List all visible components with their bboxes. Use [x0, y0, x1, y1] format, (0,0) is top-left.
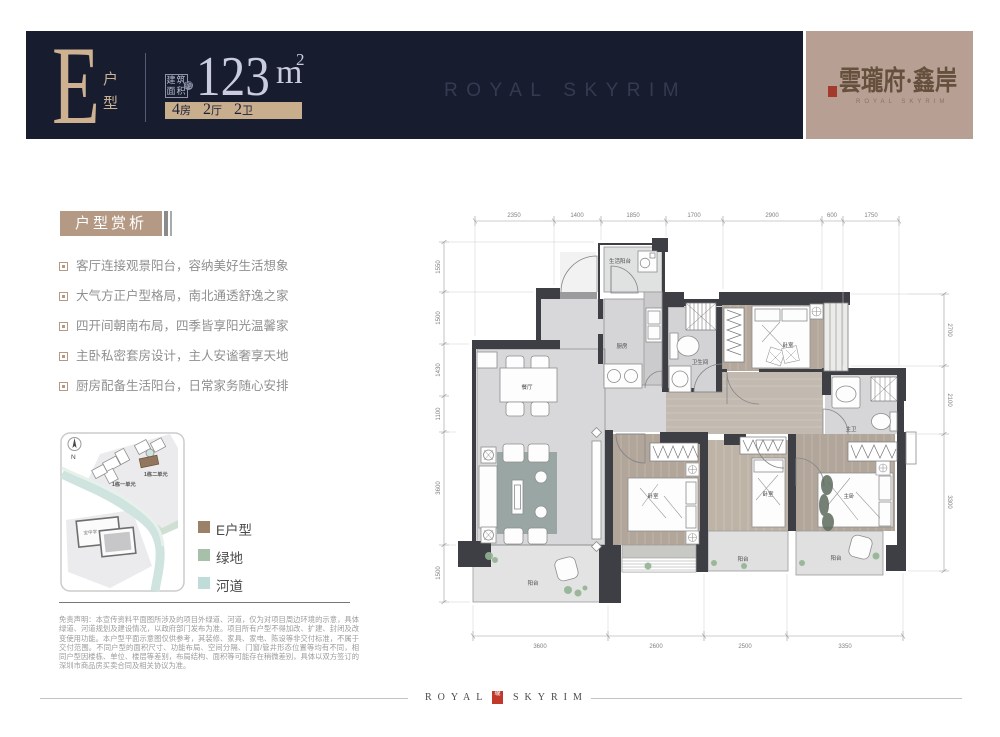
svg-text:1500: 1500	[436, 311, 442, 325]
svg-text:2700: 2700	[946, 323, 952, 337]
svg-text:厨房: 厨房	[616, 342, 628, 350]
svg-text:餐厅: 餐厅	[521, 383, 533, 391]
svg-text:阳台: 阳台	[527, 579, 539, 587]
svg-text:N: N	[71, 454, 76, 461]
svg-text:3600: 3600	[436, 481, 442, 495]
svg-text:主卫: 主卫	[845, 425, 857, 433]
svg-text:2500: 2500	[738, 644, 752, 650]
svg-text:1850: 1850	[626, 213, 640, 219]
svg-text:2600: 2600	[649, 644, 663, 650]
svg-text:1750: 1750	[864, 213, 878, 219]
svg-text:2350: 2350	[507, 213, 521, 219]
svg-text:2100: 2100	[946, 393, 952, 407]
svg-text:3600: 3600	[533, 644, 547, 650]
svg-text:1100: 1100	[436, 407, 442, 421]
svg-text:1栋一单元: 1栋一单元	[112, 480, 136, 488]
svg-text:卫生间: 卫生间	[692, 358, 709, 366]
svg-text:1700: 1700	[687, 213, 701, 219]
svg-text:2900: 2900	[765, 213, 779, 219]
svg-text:阳台: 阳台	[737, 555, 749, 563]
svg-text:1栋二单元: 1栋二单元	[144, 470, 168, 478]
svg-text:主卧: 主卧	[843, 492, 855, 500]
svg-text:1400: 1400	[570, 213, 584, 219]
svg-text:阳台: 阳台	[830, 554, 842, 562]
svg-text:卧室: 卧室	[782, 341, 794, 349]
svg-text:600: 600	[827, 213, 838, 219]
svg-text:1550: 1550	[436, 260, 442, 274]
svg-text:3300: 3300	[946, 495, 952, 509]
svg-text:1430: 1430	[436, 363, 442, 377]
svg-text:生活阳台: 生活阳台	[609, 257, 632, 265]
svg-text:1500: 1500	[436, 566, 442, 580]
svg-text:3350: 3350	[838, 644, 852, 650]
svg-text:卧室: 卧室	[647, 492, 659, 500]
svg-text:卧室: 卧室	[762, 490, 774, 498]
